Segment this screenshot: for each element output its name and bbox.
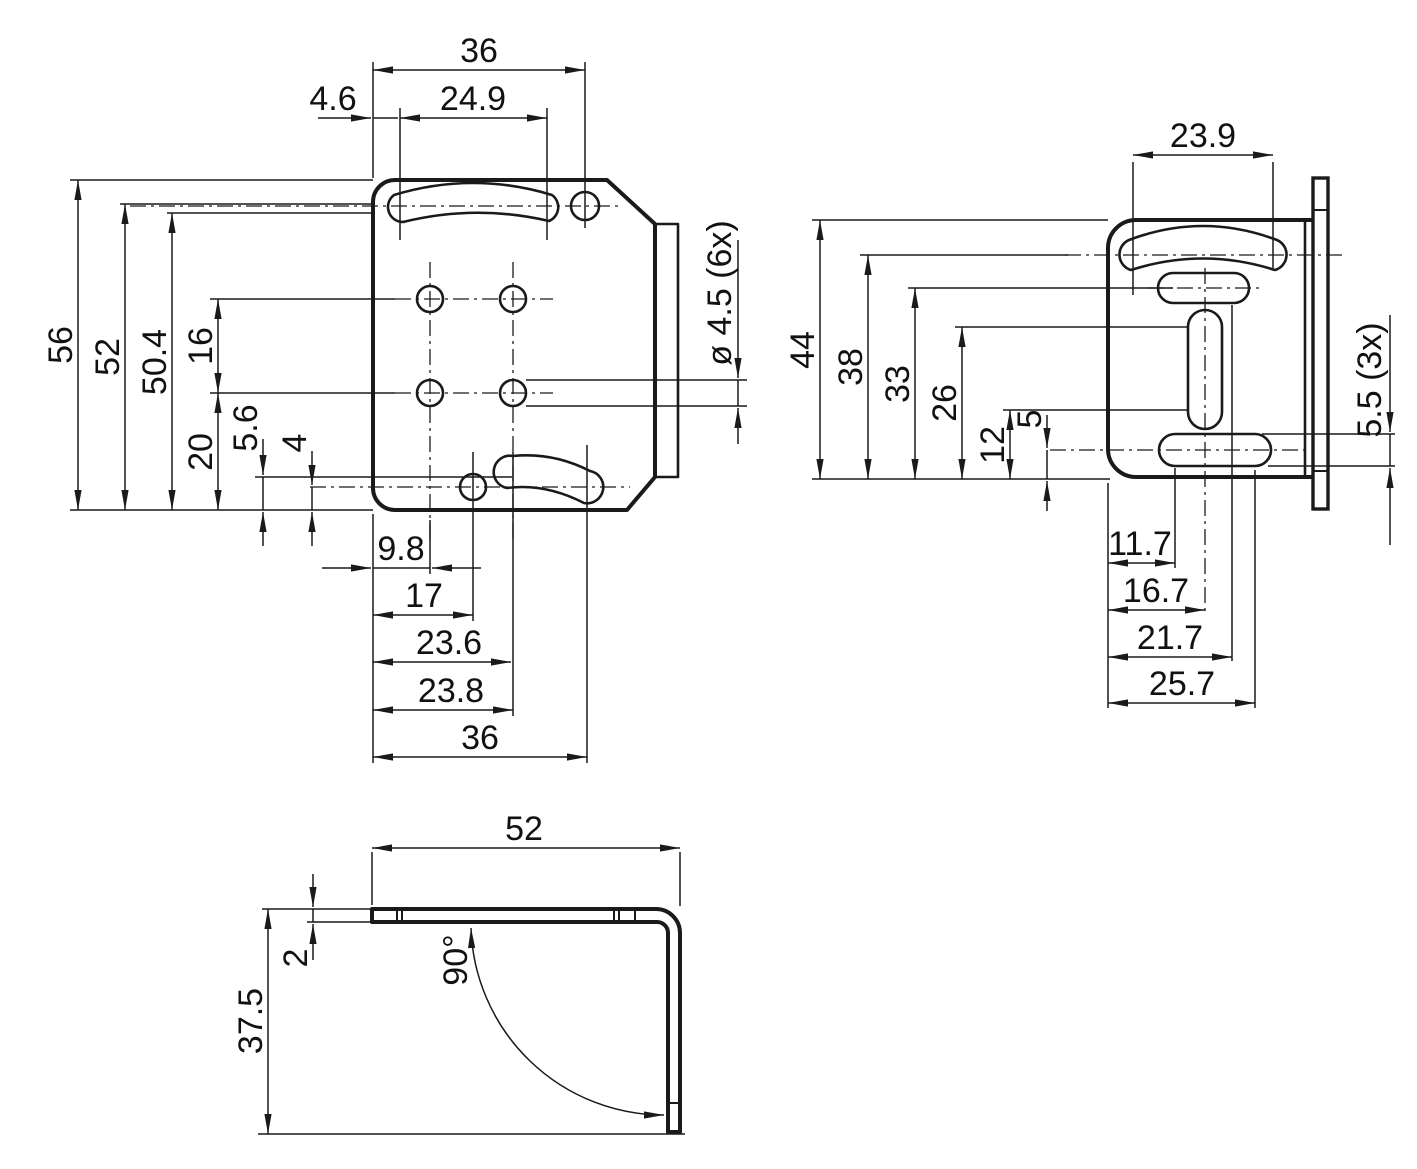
side-bottom-slot-right-label: 25.7 (1149, 665, 1215, 703)
profile-view: 52 2 37.5 90° (232, 810, 685, 1134)
side-view: 23.9 44 38 33 26 12 5 11. (784, 117, 1395, 708)
front-view: 36 4.6 24.9 56 52 50.4 16 20 (42, 32, 747, 763)
dim-side-height-top-slot: 38 (832, 255, 870, 479)
dim-side-bottom-pill-right: 21.7 (1108, 619, 1232, 657)
dim-front-hole-row-spacing: 16 (182, 299, 220, 393)
side-bottom-pill-right-label: 21.7 (1137, 619, 1203, 657)
side-slot-note-label: 5.5 (3x) (1351, 322, 1389, 437)
side-height-pill-slot-label: 33 (879, 365, 917, 403)
front-bottom-slot-left-label: 23.8 (418, 672, 484, 710)
dim-front-bottom-width: 36 (373, 719, 587, 757)
side-bottom-vslot-label: 16.7 (1123, 572, 1189, 610)
dim-side-bottom-vslot: 16.7 (1108, 572, 1205, 610)
side-flange-bar (1313, 178, 1328, 509)
dim-front-bottom-left-hole: 9.8 (322, 530, 481, 568)
dim-front-top-slot-span: 24.9 (400, 80, 547, 118)
dim-front-height-slot-edge: 50.4 (136, 213, 174, 510)
front-flange-edge (655, 224, 678, 477)
front-height-slot-label: 52 (89, 338, 127, 376)
technical-drawing: 36 4.6 24.9 56 52 50.4 16 20 (0, 0, 1417, 1169)
front-top-offset-label: 4.6 (309, 80, 356, 118)
front-bottom-pivot-label: 17 (405, 577, 443, 615)
side-top-slot-span-label: 23.9 (1170, 117, 1236, 155)
dim-front-top-width: 36 (373, 32, 585, 70)
dim-side-height-pill-slot: 33 (879, 288, 917, 479)
side-height-vslot-bottom-label: 12 (974, 426, 1012, 464)
drawing-page: 36 4.6 24.9 56 52 50.4 16 20 (0, 0, 1417, 1169)
profile-bend-angle-label: 90° (437, 934, 475, 985)
front-bottom-right-hole-label: 23.6 (416, 624, 482, 662)
dim-front-hole-note: ø 4.5 (6x) (701, 220, 739, 444)
dim-side-height-total: 44 (784, 220, 822, 479)
dim-profile-bend-angle: 90° (437, 928, 664, 1115)
side-height-bottom-slot-label: 5 (1011, 410, 1049, 429)
dim-front-bottom-slot-center: 4 (276, 434, 314, 546)
front-hole-note-label: ø 4.5 (6x) (701, 220, 739, 365)
dim-side-top-slot-span: 23.9 (1133, 117, 1273, 155)
side-flange-ticks (1313, 210, 1328, 471)
dim-front-height-total: 56 (42, 180, 80, 510)
dim-side-height-vslot-bottom: 12 (974, 410, 1012, 479)
profile-outline (372, 909, 680, 1132)
front-bottom-left-hole-label: 9.8 (377, 530, 424, 568)
dim-profile-thickness: 2 (277, 874, 315, 967)
side-arc-slot (1119, 226, 1286, 270)
front-bottom-slot-edge-label: 5.6 (227, 404, 265, 451)
side-extension-lines (812, 162, 1395, 708)
front-hole-row-spacing-label: 16 (182, 327, 220, 365)
profile-height-label: 37.5 (232, 988, 270, 1054)
dim-front-bottom-slot-edge: 5.6 (227, 404, 265, 546)
dim-side-bottom-slot-left: 11.7 (1108, 525, 1175, 563)
front-top-slot-span-label: 24.9 (440, 80, 506, 118)
front-bottom-slot-center-label: 4 (276, 434, 314, 453)
dim-side-height-vslot-top: 26 (926, 327, 964, 479)
dim-front-height-slot: 52 (89, 204, 127, 510)
dim-front-top-offset: 4.6 (309, 80, 398, 118)
front-top-width-label: 36 (460, 32, 498, 70)
side-height-total-label: 44 (784, 331, 822, 369)
front-bottom-width-label: 36 (461, 719, 499, 757)
front-body-outline (373, 180, 655, 510)
dim-front-bottom-right-hole: 23.6 (373, 624, 511, 662)
front-height-total-label: 56 (42, 326, 80, 364)
dim-side-slot-note: 5.5 (3x) (1351, 315, 1390, 545)
front-height-slot-edge-label: 50.4 (136, 329, 174, 395)
dim-profile-height: 37.5 (232, 909, 270, 1134)
front-arc-slot (388, 183, 558, 222)
dim-front-hole-row-to-bottom: 20 (182, 393, 220, 510)
profile-width-label: 52 (505, 810, 543, 848)
dim-front-bottom-pivot: 17 (373, 577, 473, 615)
side-height-vslot-top-label: 26 (926, 384, 964, 422)
dim-front-bottom-slot-left: 23.8 (373, 672, 513, 710)
side-bottom-slot-left-label: 11.7 (1108, 525, 1172, 563)
side-height-top-slot-label: 38 (832, 348, 870, 386)
profile-extension-lines (258, 852, 685, 1134)
dim-side-height-bottom-slot: 5 (1011, 410, 1049, 511)
front-hole-row-to-bottom-label: 20 (182, 433, 220, 471)
dim-profile-width: 52 (372, 810, 680, 848)
angle-arc (471, 928, 664, 1115)
front-center-lines (130, 206, 630, 540)
profile-thickness-label: 2 (277, 949, 315, 968)
dim-side-bottom-slot-right: 25.7 (1108, 665, 1255, 703)
